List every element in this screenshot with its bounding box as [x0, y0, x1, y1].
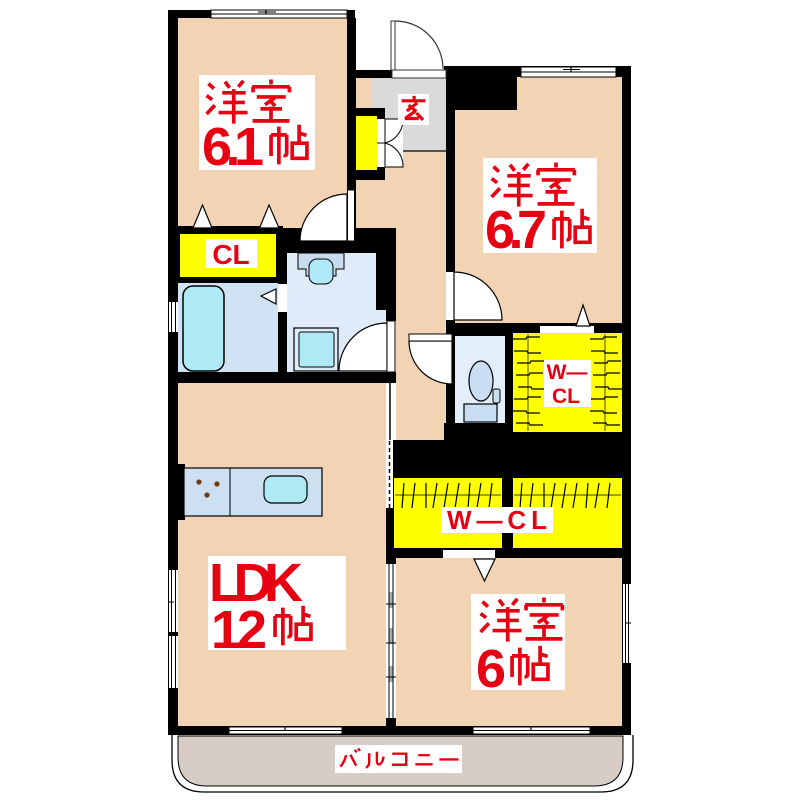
svg-text:CL: CL	[552, 385, 580, 408]
svg-text:12: 12	[211, 600, 267, 660]
svg-text:W—: W—	[547, 361, 588, 384]
svg-text:6.7: 6.7	[485, 200, 547, 260]
svg-text:W—CL: W—CL	[447, 505, 547, 535]
svg-text:CL: CL	[212, 239, 249, 270]
svg-text:6: 6	[476, 639, 506, 699]
svg-text:6.1: 6.1	[202, 117, 264, 177]
